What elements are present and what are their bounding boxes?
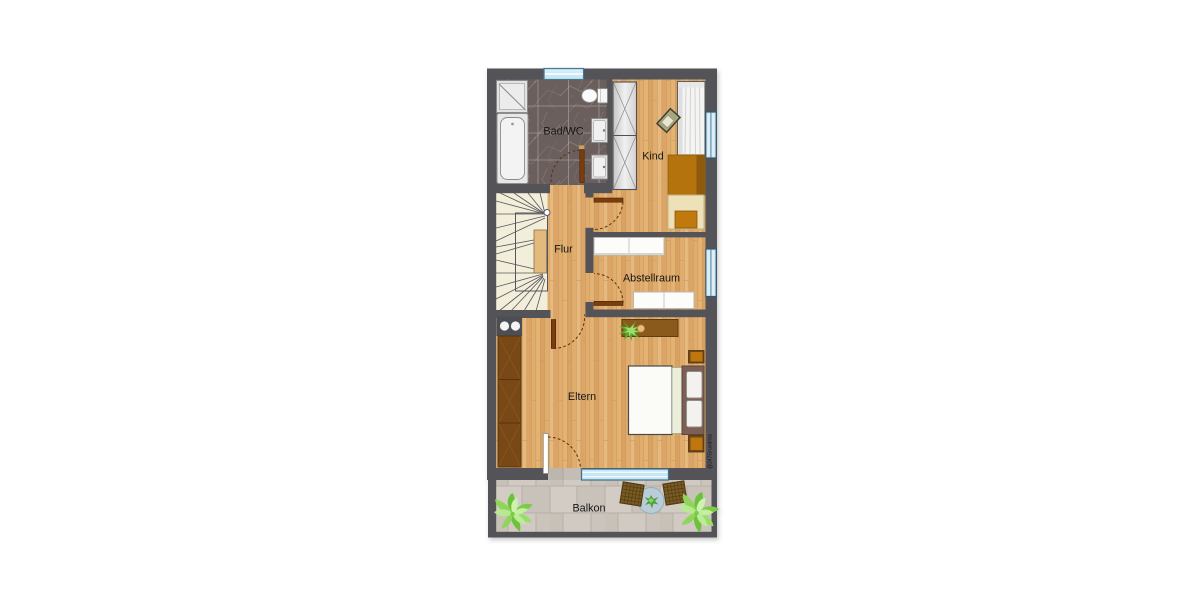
svg-text:Kind: Kind [642, 151, 664, 163]
svg-text:Balkon: Balkon [572, 503, 605, 515]
svg-text:@247Grundriss: @247Grundriss [708, 433, 714, 469]
svg-text:Eltern: Eltern [568, 391, 596, 403]
svg-text:Bad/WC: Bad/WC [543, 126, 583, 138]
svg-text:Abstellraum: Abstellraum [623, 273, 680, 285]
svg-text:Flur: Flur [554, 244, 573, 256]
